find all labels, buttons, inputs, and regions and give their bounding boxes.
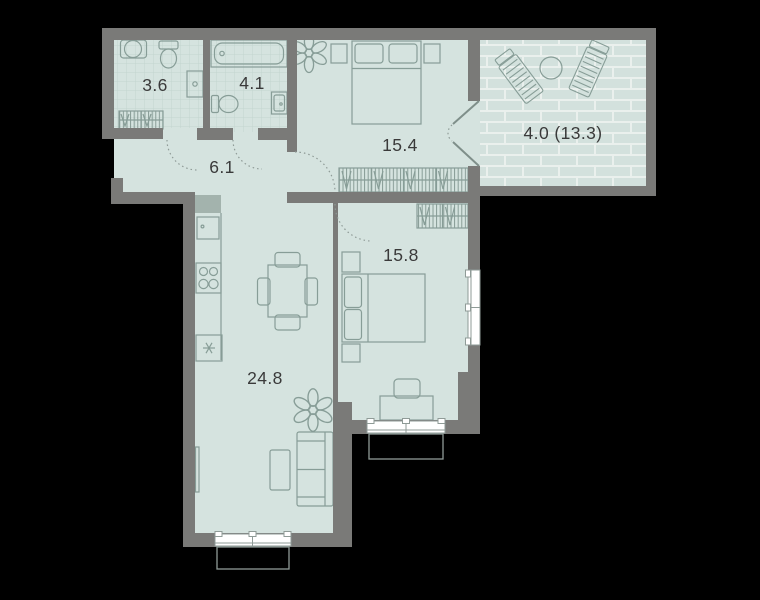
- wall: [646, 28, 656, 196]
- wall: [111, 192, 195, 204]
- floor-living: [195, 192, 335, 533]
- wall: [102, 28, 656, 40]
- wall: [468, 186, 656, 196]
- room-label-bathroom-large: 4.1: [239, 73, 265, 93]
- room-label-terrace: 4.0 (13.3): [524, 123, 603, 143]
- wardrobe-icon: [417, 204, 468, 228]
- wall: [102, 28, 114, 139]
- wall: [468, 39, 480, 101]
- wall: [203, 39, 210, 128]
- room-label-living-kitchen: 24.8: [247, 368, 283, 388]
- wall: [258, 128, 297, 140]
- room-label-hallway: 6.1: [209, 157, 235, 177]
- wall: [102, 128, 163, 139]
- window-sill: [369, 434, 443, 459]
- room-label-bathroom-small: 3.6: [142, 75, 168, 95]
- wardrobe-icon: [119, 111, 163, 129]
- window-icon: [466, 270, 481, 345]
- kitchen-shaft: [195, 195, 221, 213]
- wall: [183, 192, 195, 547]
- window-icon: [215, 532, 291, 547]
- wall: [197, 128, 233, 140]
- wall: [333, 203, 338, 420]
- room-label-bedroom-top: 15.4: [382, 135, 418, 155]
- window-sill: [217, 547, 289, 569]
- floorplan-canvas: 3.6 4.1 6.1 15.4 15.8 24.8 4.0 (13.3): [0, 0, 760, 600]
- wall: [287, 192, 480, 203]
- wardrobe-icon: [339, 168, 468, 192]
- room-label-bedroom-right: 15.8: [383, 245, 419, 265]
- floor-bedroom-right: [338, 203, 468, 421]
- window-icon: [367, 419, 445, 434]
- floorplan-svg: 3.6 4.1 6.1 15.4 15.8 24.8 4.0 (13.3): [0, 0, 760, 600]
